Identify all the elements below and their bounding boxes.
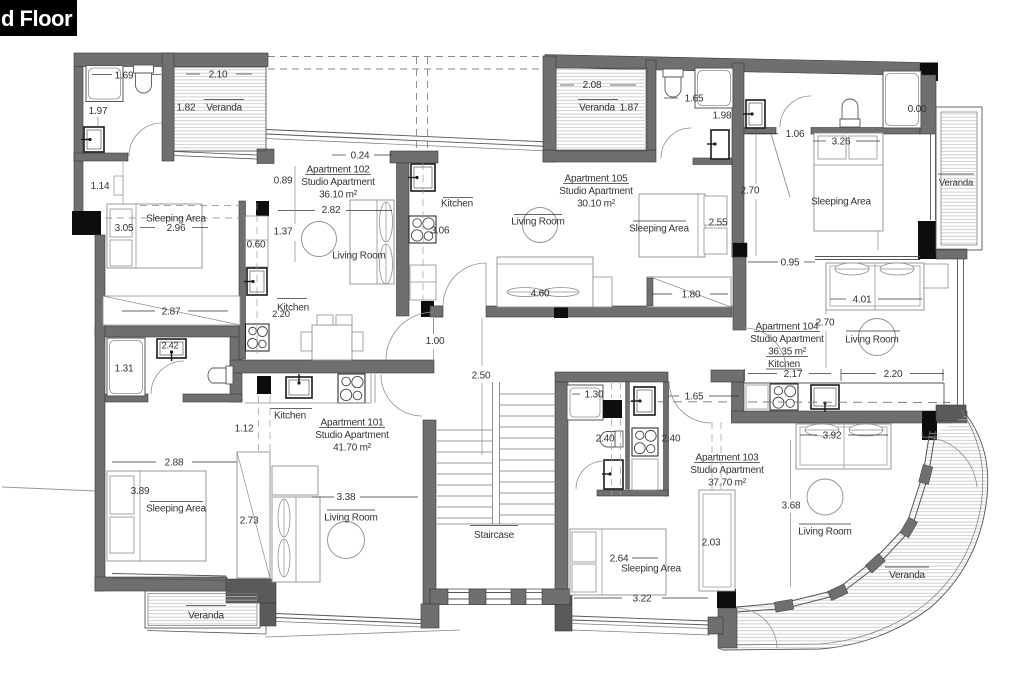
- svg-text:Studio Apartment: Studio Apartment: [315, 430, 389, 441]
- svg-text:36.35 m²: 36.35 m²: [768, 347, 807, 358]
- svg-text:Living Room: Living Room: [332, 251, 385, 262]
- svg-text:4.60: 4.60: [531, 289, 550, 300]
- svg-text:1.00: 1.00: [426, 336, 445, 347]
- svg-text:Veranda: Veranda: [188, 611, 224, 622]
- svg-text:Veranda: Veranda: [939, 178, 974, 189]
- svg-text:2.40: 2.40: [596, 434, 615, 445]
- svg-text:3.38: 3.38: [337, 492, 356, 503]
- svg-text:0.95: 0.95: [781, 258, 800, 269]
- svg-text:2.20: 2.20: [884, 369, 903, 380]
- svg-text:30.10 m²: 30.10 m²: [577, 199, 616, 210]
- svg-text:Veranda: Veranda: [206, 103, 242, 114]
- svg-text:1.82: 1.82: [177, 103, 196, 114]
- svg-text:3.68: 3.68: [782, 501, 801, 512]
- svg-text:0.89: 0.89: [274, 176, 293, 187]
- svg-text:Apartment 102: Apartment 102: [307, 165, 371, 176]
- svg-text:2.87: 2.87: [162, 307, 181, 318]
- svg-text:1.37: 1.37: [274, 227, 293, 238]
- svg-text:Living Room: Living Room: [798, 527, 851, 538]
- svg-text:Apartment 101: Apartment 101: [321, 418, 385, 429]
- svg-text:2.70: 2.70: [816, 318, 835, 329]
- svg-text:Kitchen: Kitchen: [441, 199, 473, 210]
- svg-text:1.98: 1.98: [713, 111, 732, 122]
- svg-text:2.03: 2.03: [702, 538, 721, 549]
- svg-text:1.14: 1.14: [91, 181, 110, 192]
- svg-text:3.22: 3.22: [633, 594, 652, 605]
- svg-text:Studio Apartment: Studio Apartment: [750, 334, 824, 345]
- svg-text:1.30: 1.30: [585, 390, 604, 401]
- svg-text:Living Room: Living Room: [324, 513, 377, 524]
- svg-text:2.42: 2.42: [162, 341, 179, 351]
- svg-text:Apartment 105: Apartment 105: [565, 174, 629, 185]
- svg-text:3.06: 3.06: [431, 226, 450, 237]
- svg-text:Apartment 104: Apartment 104: [756, 322, 820, 333]
- svg-text:0.24: 0.24: [351, 151, 370, 162]
- svg-text:4.01: 4.01: [853, 295, 872, 306]
- svg-text:0.60: 0.60: [247, 240, 266, 251]
- svg-text:2.10: 2.10: [209, 70, 228, 81]
- svg-text:2.70: 2.70: [741, 186, 760, 197]
- svg-text:Staircase: Staircase: [474, 530, 515, 541]
- svg-text:Sleeping Area: Sleeping Area: [811, 197, 871, 208]
- svg-text:Veranda: Veranda: [889, 570, 925, 581]
- svg-text:41.70 m²: 41.70 m²: [333, 443, 372, 454]
- svg-text:1.87: 1.87: [620, 103, 639, 114]
- svg-text:d Floor: d Floor: [1, 6, 73, 31]
- svg-text:0.00: 0.00: [908, 104, 927, 115]
- svg-text:1.69: 1.69: [115, 71, 134, 82]
- svg-text:1.06: 1.06: [786, 129, 805, 140]
- svg-text:1.12: 1.12: [235, 424, 254, 435]
- svg-text:2.73: 2.73: [240, 516, 259, 527]
- svg-text:1.31: 1.31: [115, 364, 134, 375]
- svg-text:1.65: 1.65: [685, 94, 704, 105]
- svg-text:2.40: 2.40: [662, 434, 681, 445]
- svg-text:1.80: 1.80: [682, 290, 701, 301]
- svg-text:Kitchen: Kitchen: [274, 411, 306, 422]
- svg-text:1.97: 1.97: [89, 106, 108, 117]
- svg-text:Living Room: Living Room: [845, 335, 898, 346]
- svg-text:Studio Apartment: Studio Apartment: [301, 177, 375, 188]
- svg-text:Living Room: Living Room: [511, 217, 564, 228]
- svg-text:2.82: 2.82: [322, 205, 341, 216]
- svg-text:Studio Apartment: Studio Apartment: [690, 465, 764, 476]
- svg-text:1.65: 1.65: [685, 392, 704, 403]
- svg-text:2.08: 2.08: [583, 80, 602, 91]
- svg-text:Apartment 103: Apartment 103: [696, 453, 760, 464]
- svg-text:Veranda: Veranda: [579, 103, 615, 114]
- svg-text:2.17: 2.17: [784, 369, 803, 380]
- svg-text:2.55: 2.55: [709, 218, 728, 229]
- svg-text:Studio Apartment: Studio Apartment: [559, 186, 633, 197]
- svg-text:3.92: 3.92: [823, 431, 842, 442]
- svg-text:2.96: 2.96: [167, 223, 186, 234]
- svg-text:3.89: 3.89: [131, 486, 150, 497]
- svg-text:2.88: 2.88: [165, 458, 184, 469]
- svg-text:3.26: 3.26: [832, 137, 851, 148]
- svg-text:Sleeping Area: Sleeping Area: [629, 224, 689, 235]
- svg-text:36.10 m²: 36.10 m²: [319, 190, 358, 201]
- svg-text:Sleeping Area: Sleeping Area: [146, 504, 206, 515]
- svg-text:37.70 m²: 37.70 m²: [708, 478, 747, 489]
- svg-text:3.05: 3.05: [115, 223, 134, 234]
- svg-text:2.20: 2.20: [272, 309, 290, 320]
- svg-text:Sleeping Area: Sleeping Area: [621, 564, 681, 575]
- svg-text:2.50: 2.50: [472, 371, 491, 382]
